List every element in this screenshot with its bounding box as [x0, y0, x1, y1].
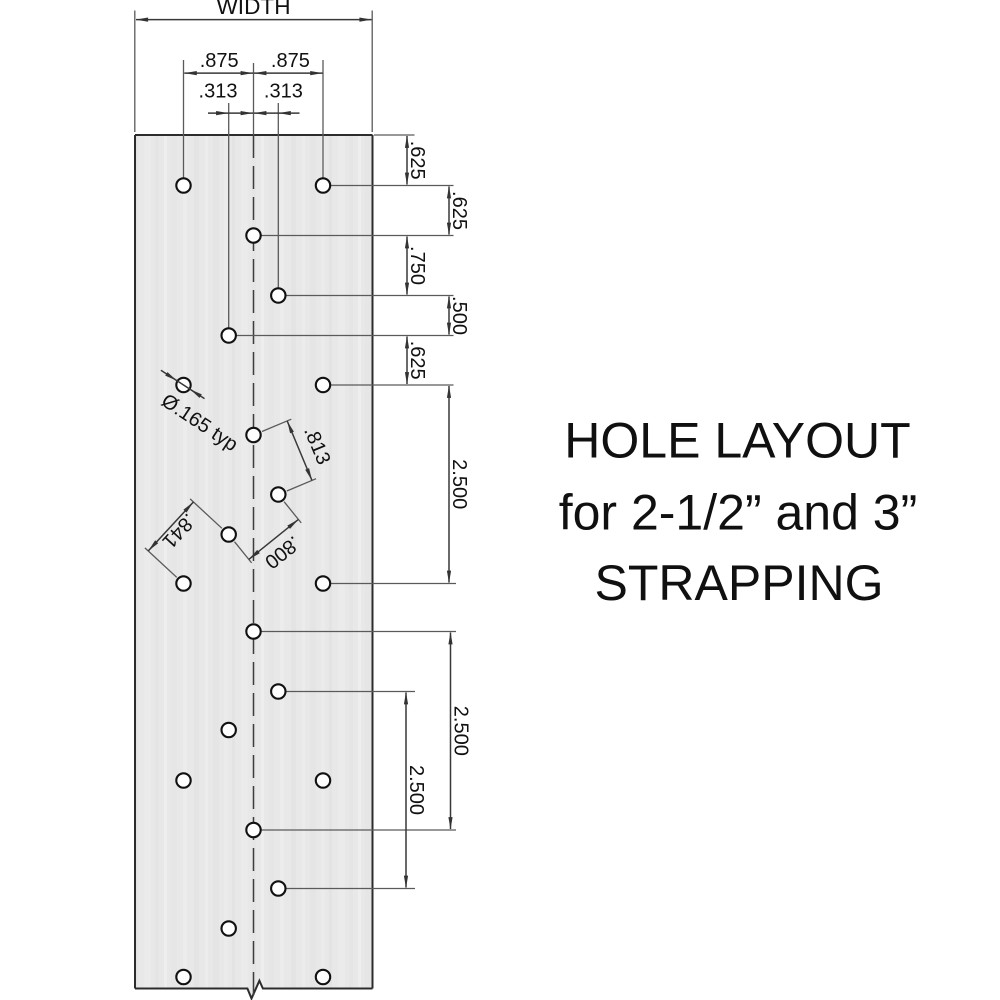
- svg-text:.313: .313: [199, 81, 238, 103]
- svg-text:STRAPPING: STRAPPING: [595, 555, 884, 611]
- svg-text:.313: .313: [264, 81, 303, 103]
- svg-text:.875: .875: [200, 50, 239, 72]
- svg-text:for 2-1/2” and 3”: for 2-1/2” and 3”: [559, 485, 918, 541]
- svg-text:2.500: 2.500: [405, 765, 427, 815]
- svg-text:.500: .500: [448, 296, 470, 335]
- svg-text:2.500: 2.500: [448, 459, 470, 509]
- svg-text:2.500: 2.500: [450, 706, 472, 756]
- svg-text:HOLE LAYOUT: HOLE LAYOUT: [564, 413, 910, 469]
- svg-text:.625: .625: [406, 141, 428, 180]
- svg-text:.750: .750: [406, 246, 428, 285]
- svg-text:WIDTH: WIDTH: [216, 0, 290, 19]
- svg-text:.625: .625: [406, 341, 428, 380]
- svg-text:.625: .625: [448, 191, 470, 230]
- svg-text:.875: .875: [271, 50, 310, 72]
